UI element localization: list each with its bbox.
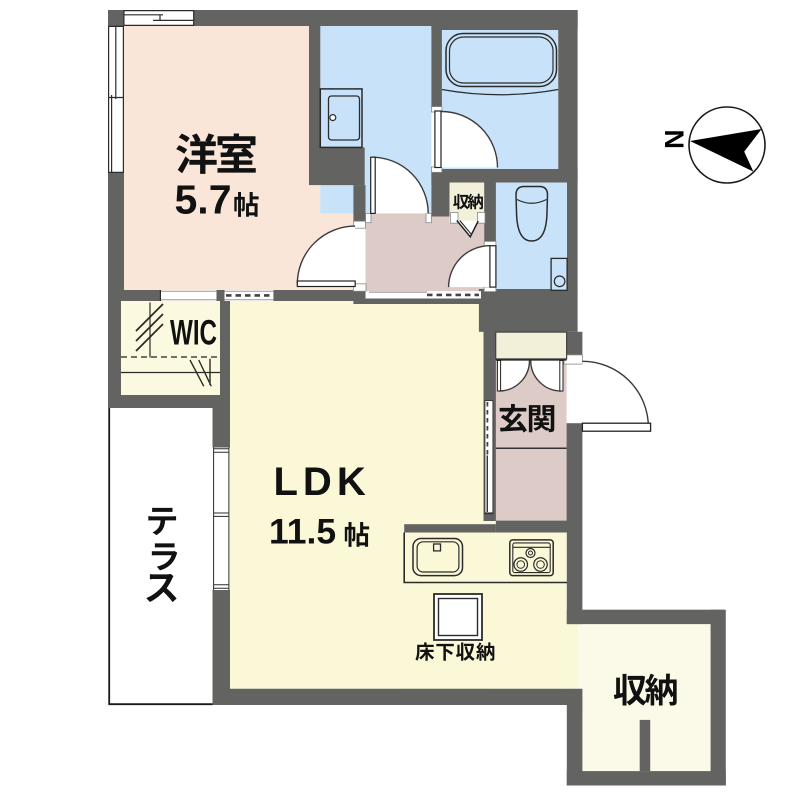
svg-text:5.7: 5.7: [175, 176, 232, 222]
svg-text:N: N: [659, 130, 689, 150]
svg-text:LDK: LDK: [274, 460, 371, 504]
svg-text:11.5: 11.5: [269, 512, 336, 552]
svg-text:WIC: WIC: [170, 313, 217, 353]
